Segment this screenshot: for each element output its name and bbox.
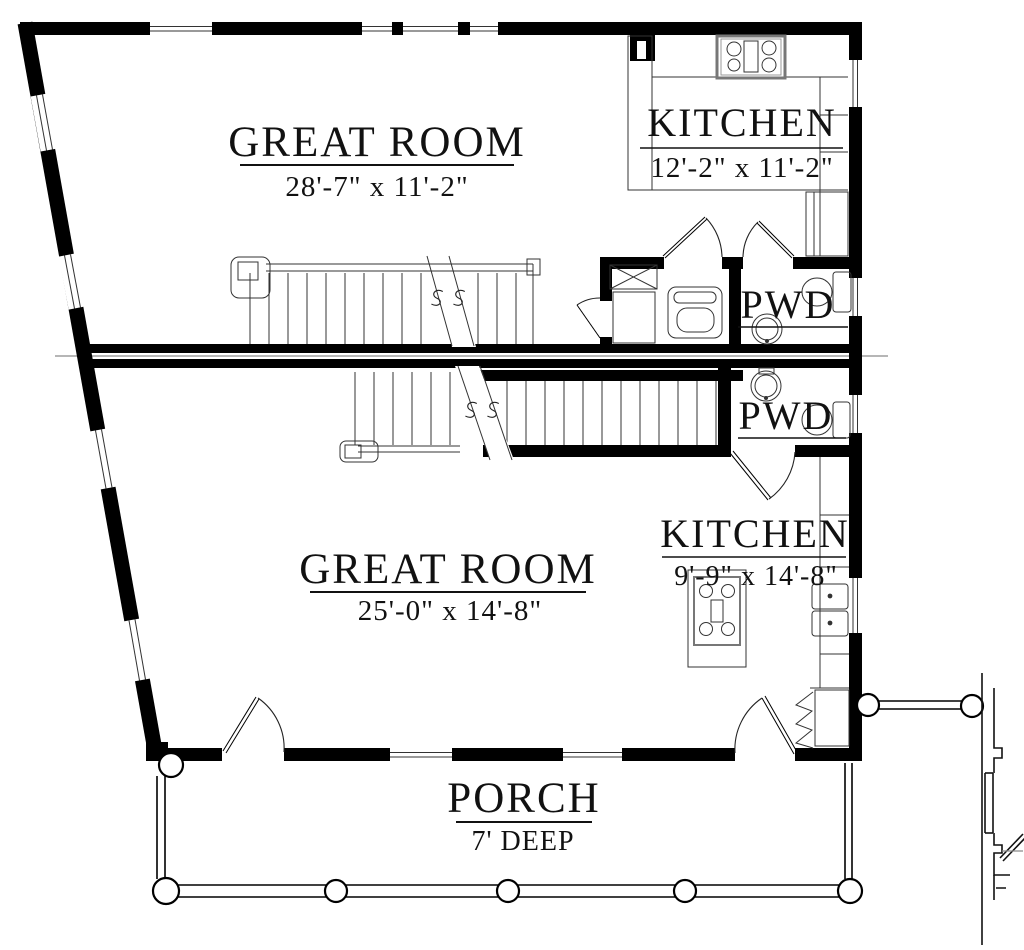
porch-post-icon [674,880,696,902]
porch-post-icon [838,879,862,903]
floor-plan-page: GREAT ROOM 28'-7" x 11'-2" KITCHEN 12'-2… [0,0,1024,950]
pwd-upper-label: PWD [741,282,836,327]
porch-post-icon [497,880,519,902]
great-room-upper-dims: 28'-7" x 11'-2" [285,171,468,203]
window-icon [390,748,452,761]
floor-plan-drawing: GREAT ROOM 28'-7" x 11'-2" KITCHEN 12'-2… [0,0,1024,950]
porch-post-icon [325,880,347,902]
window-icon [362,22,392,35]
door-opening [600,301,612,337]
porch-label: PORCH [447,775,600,822]
great-room-lower-label: GREAT ROOM [299,546,597,593]
window-icon [470,22,498,35]
window-icon [849,578,862,633]
great-room-lower-dims: 25'-0" x 14'-8" [358,595,542,627]
kitchen-upper-dims: 12'-2" x 11'-2" [650,152,833,184]
window-icon [150,22,212,35]
range-icon [717,36,785,78]
porch-post-icon [159,753,183,777]
kitchen-lower-label: KITCHEN [660,511,850,556]
window-icon [849,60,862,107]
window-icon [403,22,458,35]
window-icon [563,748,622,761]
great-room-upper-label: GREAT ROOM [228,119,526,166]
kitchen-upper-label: KITCHEN [647,100,837,145]
wall-slot [637,41,646,59]
porch-post-icon [153,878,179,904]
door-opening [735,748,795,761]
door-opening [222,748,284,761]
porch-dims: 7' DEEP [471,826,574,857]
window-icon [849,395,862,433]
porch-post-icon [857,694,879,716]
porch-post-icon [961,695,983,717]
kitchen-lower-dims: 9'-9" x 14'-8" [674,561,838,592]
pwd-lower-label: PWD [739,393,834,438]
